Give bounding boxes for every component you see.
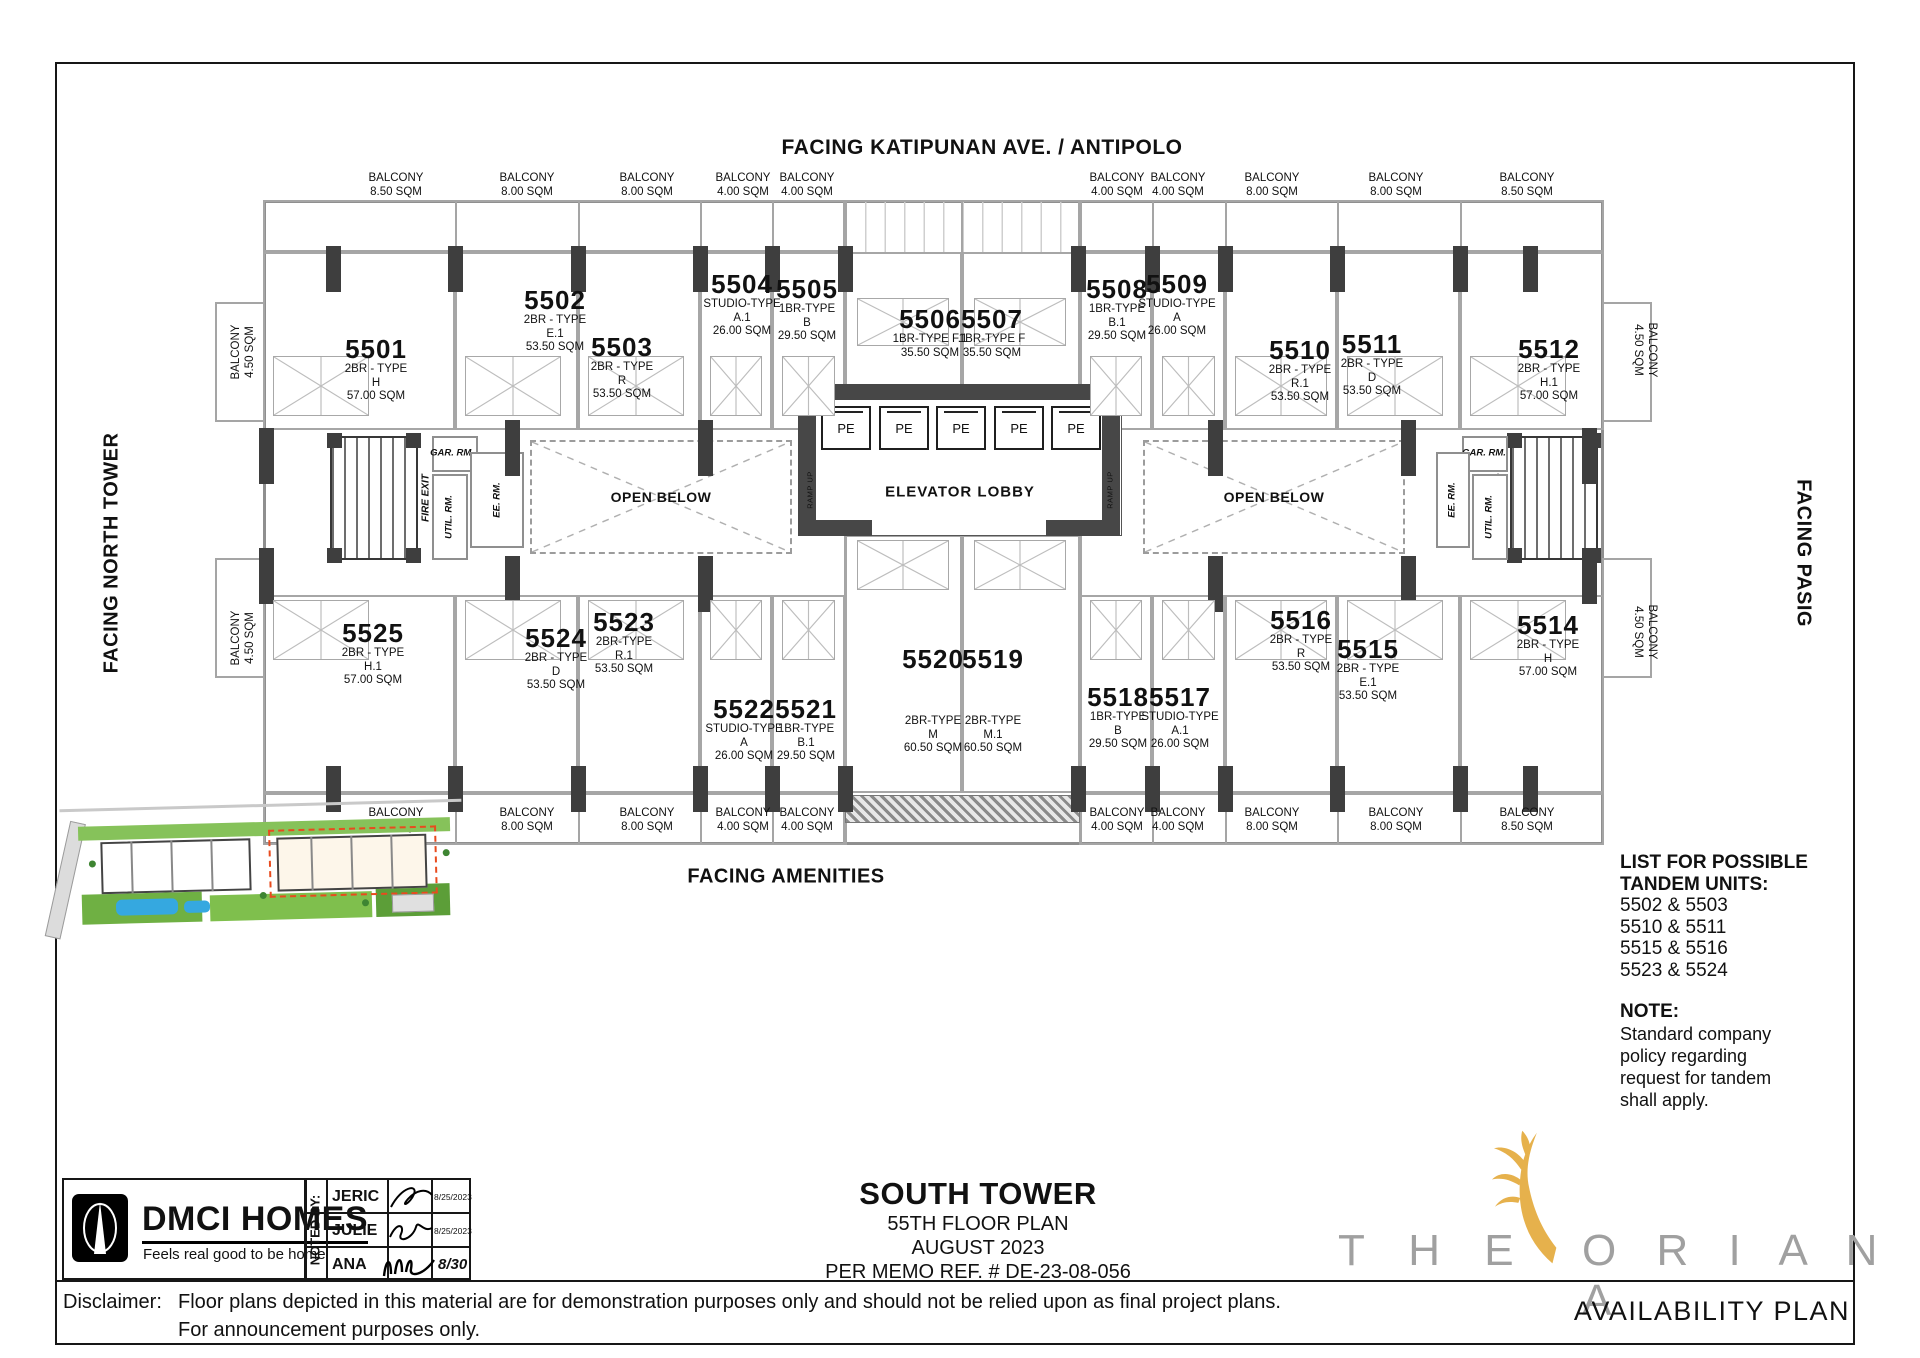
unit-number: 5516 bbox=[1270, 607, 1332, 634]
unit-type: 2BR - TYPEH57.00 SQM bbox=[345, 363, 407, 404]
fixture-cluster bbox=[974, 540, 1066, 590]
fire-exit-stairs bbox=[330, 436, 418, 560]
unit-type: STUDIO-TYPEA.126.00 SQM bbox=[1141, 711, 1218, 752]
unit-type: 2BR - TYPER53.50 SQM bbox=[591, 361, 653, 402]
column bbox=[448, 246, 463, 292]
side-balcony-label: BALCONY4.50 SQM bbox=[229, 611, 257, 666]
elevator-lobby-label: ELEVATOR LOBBY bbox=[885, 484, 1035, 501]
disclaimer-line2: For announcement purposes only. bbox=[178, 1316, 480, 1344]
side-balcony-label: BALCONY4.50 SQM bbox=[1631, 605, 1659, 660]
unit-label-5504: 5504STUDIO-TYPEA.126.00 SQM bbox=[703, 271, 780, 339]
column bbox=[1582, 428, 1597, 484]
unit-type: 2BR-TYPEM60.50 SQM bbox=[902, 715, 964, 756]
column bbox=[1071, 766, 1086, 812]
unit-number: 5523 bbox=[593, 609, 655, 636]
availability-plan-label: AVAILABILITY PLAN bbox=[1574, 1296, 1850, 1327]
plan-title: SOUTH TOWER 55TH FLOOR PLAN AUGUST 2023 … bbox=[825, 1176, 1131, 1284]
unit-label-5503: 55032BR - TYPER53.50 SQM bbox=[591, 334, 653, 402]
elevator-core-wall bbox=[798, 384, 1122, 400]
unit-label-5514: 55142BR - TYPEH57.00 SQM bbox=[1517, 612, 1579, 680]
balcony-label: BALCONY4.00 SQM bbox=[716, 806, 771, 834]
column bbox=[693, 766, 708, 812]
fixture-cluster bbox=[782, 356, 835, 416]
site-map-pool bbox=[116, 898, 178, 916]
balcony-label: BALCONY8.00 SQM bbox=[1245, 171, 1300, 199]
balcony-strip bbox=[263, 200, 845, 252]
balcony-strip bbox=[1080, 200, 1604, 252]
unit-label-5524: 55242BR - TYPED53.50 SQM bbox=[525, 625, 587, 693]
unit-label-5517: 5517STUDIO-TYPEA.126.00 SQM bbox=[1141, 684, 1218, 752]
site-map-pool bbox=[184, 900, 210, 913]
site-map-tree bbox=[443, 849, 450, 856]
unit-type: 2BR - TYPER53.50 SQM bbox=[1270, 634, 1332, 675]
column bbox=[1401, 420, 1416, 476]
balcony-divider bbox=[578, 202, 580, 250]
unit-type: 2BR-TYPEM.160.50 SQM bbox=[962, 715, 1024, 756]
unit-type: STUDIO-TYPEA26.00 SQM bbox=[1138, 298, 1215, 339]
unit-label-5515: 55152BR - TYPEE.153.50 SQM bbox=[1337, 636, 1399, 704]
balcony-label: BALCONY8.00 SQM bbox=[500, 806, 555, 834]
unit-type: 1BR-TYPEB29.50 SQM bbox=[776, 303, 838, 344]
unit-number: 5512 bbox=[1518, 336, 1580, 363]
tandem-pair: 5523 & 5524 bbox=[1620, 960, 1855, 982]
signature bbox=[388, 1217, 434, 1245]
unit-label-5518: 55181BR-TYPEB29.50 SQM bbox=[1087, 684, 1149, 752]
unit-number: 5502 bbox=[524, 287, 586, 314]
column bbox=[1453, 246, 1468, 292]
balcony-label: BALCONY8.50 SQM bbox=[369, 171, 424, 199]
unit-number: 5524 bbox=[525, 625, 587, 652]
unit-type: 2BR - TYPER.153.50 SQM bbox=[1269, 364, 1331, 405]
utility-room-label: UTIL. RM. bbox=[444, 495, 455, 539]
unit-type: 2BR - TYPED53.50 SQM bbox=[525, 652, 587, 693]
column bbox=[1453, 766, 1468, 812]
fixture-cluster bbox=[710, 600, 762, 660]
unit-label-5511: 55112BR - TYPED53.50 SQM bbox=[1341, 331, 1403, 399]
notedby-name: JERIC bbox=[332, 1188, 379, 1206]
unit-number: 5511 bbox=[1341, 331, 1403, 358]
column bbox=[698, 420, 713, 476]
unit-type: 2BR - TYPEH57.00 SQM bbox=[1517, 639, 1579, 680]
closet-band-divider bbox=[961, 202, 963, 252]
balcony-label: BALCONY4.00 SQM bbox=[780, 171, 835, 199]
notedby-row-line bbox=[304, 1246, 471, 1248]
note-line: Standard company bbox=[1620, 1023, 1855, 1045]
fire-exit-label: FIRE EXIT bbox=[421, 474, 432, 522]
notedby-name: JULIE bbox=[332, 1222, 377, 1240]
balcony-divider bbox=[700, 202, 702, 250]
fixture-cluster bbox=[465, 356, 561, 416]
unit-type: STUDIO-TYPEA.126.00 SQM bbox=[703, 298, 780, 339]
column bbox=[1071, 246, 1086, 292]
tandem-pair: 5510 & 5511 bbox=[1620, 917, 1855, 939]
tandem-pair: 5515 & 5516 bbox=[1620, 938, 1855, 960]
notedby-name: ANA bbox=[332, 1256, 367, 1274]
electrical-room-label: EE. RM. bbox=[1447, 482, 1458, 517]
notedby-label: NOTED BY: bbox=[308, 1195, 323, 1266]
unit-number: 5521 bbox=[775, 696, 837, 723]
stair-corner-column bbox=[1507, 433, 1522, 448]
unit-type: 2BR - TYPEE.153.50 SQM bbox=[524, 314, 586, 355]
dmci-logo bbox=[72, 1194, 128, 1262]
unit-type: 2BR-TYPER.153.50 SQM bbox=[593, 636, 655, 677]
unit-number: 5525 bbox=[342, 620, 404, 647]
balcony-label: BALCONY8.00 SQM bbox=[620, 806, 675, 834]
unit-label-5520: 55202BR-TYPEM60.50 SQM bbox=[902, 646, 964, 756]
fixture-cluster bbox=[1090, 600, 1142, 660]
unit-label-5516: 55162BR - TYPER53.50 SQM bbox=[1270, 607, 1332, 675]
elevator-PE: PE bbox=[936, 406, 986, 450]
balcony-label: BALCONY4.00 SQM bbox=[1090, 171, 1145, 199]
ramp-up-label: RAMP UP bbox=[1106, 471, 1115, 509]
column bbox=[1582, 548, 1597, 604]
elevator-PE: PE bbox=[879, 406, 929, 450]
balcony-label: BALCONY8.00 SQM bbox=[620, 171, 675, 199]
balcony-divider bbox=[1225, 202, 1227, 250]
balcony-label: BALCONY8.50 SQM bbox=[1500, 806, 1555, 834]
unit-number: 5507 bbox=[959, 306, 1025, 333]
floor-plan: OPEN BELOWOPEN BELOWFIRE EXITFIRE EXITGA… bbox=[0, 0, 1920, 1358]
garbage-room-label: GAR. RM. bbox=[430, 448, 474, 459]
notedby-divider bbox=[326, 1178, 328, 1280]
elevator-PE: PE bbox=[994, 406, 1044, 450]
unit-number: 5515 bbox=[1337, 636, 1399, 663]
site-map-building-north bbox=[100, 838, 251, 894]
ramp-up-label: RAMP UP bbox=[806, 471, 815, 509]
note-line: shall apply. bbox=[1620, 1089, 1855, 1111]
balcony-divider bbox=[1152, 202, 1154, 250]
unit-label-5525: 55252BR - TYPEH.157.00 SQM bbox=[342, 620, 404, 688]
open-below-label: OPEN BELOW bbox=[1224, 489, 1325, 505]
column bbox=[838, 246, 853, 292]
side-balcony-label: BALCONY4.50 SQM bbox=[1631, 323, 1659, 378]
notedby-date: 8/30 bbox=[438, 1256, 467, 1273]
brand-leaf-icon bbox=[1492, 1128, 1570, 1270]
balcony-divider bbox=[1337, 202, 1339, 250]
unit-type: 2BR - TYPEE.153.50 SQM bbox=[1337, 663, 1399, 704]
memo-ref: PER MEMO REF. # DE-23-08-056 bbox=[825, 1260, 1131, 1284]
unit-number: 5519 bbox=[962, 646, 1024, 673]
balcony-divider bbox=[1460, 202, 1462, 250]
unit-label-5509: 5509STUDIO-TYPEA26.00 SQM bbox=[1138, 271, 1215, 339]
unit-label-5519: 55192BR-TYPEM.160.50 SQM bbox=[962, 646, 1024, 756]
balcony-label: BALCONY4.00 SQM bbox=[1151, 171, 1206, 199]
unit-number: 5514 bbox=[1517, 612, 1579, 639]
balcony-label: BALCONY8.00 SQM bbox=[1245, 806, 1300, 834]
note-line: request for tandem bbox=[1620, 1067, 1855, 1089]
column bbox=[326, 246, 341, 292]
planter-band bbox=[845, 795, 1080, 823]
elevator-core-wall bbox=[1046, 520, 1120, 536]
column bbox=[259, 548, 274, 604]
unit-number: 5501 bbox=[345, 336, 407, 363]
tandem-units-list: LIST FOR POSSIBLE TANDEM UNITS: 5502 & 5… bbox=[1620, 852, 1855, 1111]
unit-type: STUDIO-TYPEA26.00 SQM bbox=[705, 723, 782, 764]
disclaimer-label: Disclaimer: bbox=[63, 1288, 162, 1316]
plan-month: AUGUST 2023 bbox=[825, 1236, 1131, 1260]
note-line: policy regarding bbox=[1620, 1045, 1855, 1067]
column bbox=[1523, 246, 1538, 292]
fixture-cluster bbox=[857, 540, 949, 590]
column bbox=[1330, 246, 1345, 292]
fixture-cluster bbox=[782, 600, 835, 660]
column bbox=[259, 428, 274, 484]
floor-title: 55TH FLOOR PLAN bbox=[825, 1212, 1131, 1236]
tandem-pair: 5502 & 5503 bbox=[1620, 895, 1855, 917]
unit-number: 5522 bbox=[705, 696, 782, 723]
unit-type: 1BR-TYPEB.129.50 SQM bbox=[775, 723, 837, 764]
unit-number: 5503 bbox=[591, 334, 653, 361]
dmci-tagline: Feels real good to be home bbox=[143, 1246, 326, 1263]
site-map-court bbox=[392, 894, 434, 913]
signature bbox=[380, 1250, 438, 1280]
column bbox=[1218, 766, 1233, 812]
site-map bbox=[59, 793, 464, 939]
column bbox=[571, 766, 586, 812]
balcony-label: BALCONY4.00 SQM bbox=[1090, 806, 1145, 834]
column bbox=[1208, 420, 1223, 476]
unit-number: 5517 bbox=[1141, 684, 1218, 711]
balcony-label: BALCONY8.50 SQM bbox=[1500, 171, 1555, 199]
unit-number: 5509 bbox=[1138, 271, 1215, 298]
unit-type: 1BR-TYPE F35.50 SQM bbox=[959, 333, 1025, 360]
balcony-divider bbox=[772, 202, 774, 250]
electrical-room-label: EE. RM. bbox=[492, 482, 503, 517]
site-map-road bbox=[59, 799, 461, 813]
site-map-tree bbox=[89, 860, 96, 867]
disclaimer-line1: Floor plans depicted in this material ar… bbox=[178, 1288, 1281, 1316]
stair-corner-column bbox=[1507, 548, 1522, 563]
unit-label-5512: 55122BR - TYPEH.157.00 SQM bbox=[1518, 336, 1580, 404]
note-heading: NOTE: bbox=[1620, 1001, 1855, 1023]
notedby-date: 8/25/2023 bbox=[434, 1192, 472, 1202]
unit-number: 5505 bbox=[776, 276, 838, 303]
stair-corner-column bbox=[327, 548, 342, 563]
notedby-date: 8/25/2023 bbox=[434, 1226, 472, 1236]
unit-type: 1BR-TYPEB29.50 SQM bbox=[1087, 711, 1149, 752]
column bbox=[1218, 246, 1233, 292]
unit-type: 2BR - TYPEH.157.00 SQM bbox=[1518, 363, 1580, 404]
unit-type: 1BR-TYPE F.135.50 SQM bbox=[893, 333, 968, 360]
tower-title: SOUTH TOWER bbox=[825, 1176, 1131, 1212]
unit-label-5522: 5522STUDIO-TYPEA26.00 SQM bbox=[705, 696, 782, 764]
column bbox=[505, 420, 520, 476]
column bbox=[838, 766, 853, 812]
unit-number: 5504 bbox=[703, 271, 780, 298]
balcony-label: BALCONY4.00 SQM bbox=[780, 806, 835, 834]
closet-band bbox=[845, 200, 1080, 254]
unit-label-5506: 55061BR-TYPE F.135.50 SQM bbox=[893, 306, 968, 360]
unit-label-5507: 55071BR-TYPE F35.50 SQM bbox=[959, 306, 1025, 360]
site-map-highlight-box bbox=[268, 825, 438, 897]
balcony-label: BALCONY4.00 SQM bbox=[1151, 806, 1206, 834]
fixture-cluster bbox=[1162, 600, 1215, 660]
open-below-label: OPEN BELOW bbox=[611, 489, 712, 505]
fixture-cluster bbox=[1162, 356, 1215, 416]
balcony-divider bbox=[455, 202, 457, 250]
elevator-core-wall bbox=[798, 520, 872, 536]
stair-corner-column bbox=[406, 433, 421, 448]
unit-label-5510: 55102BR - TYPER.153.50 SQM bbox=[1269, 337, 1331, 405]
stair-corner-column bbox=[406, 548, 421, 563]
unit-label-5505: 55051BR-TYPEB29.50 SQM bbox=[776, 276, 838, 344]
balcony-label: BALCONY8.00 SQM bbox=[500, 171, 555, 199]
tandem-heading: LIST FOR POSSIBLE bbox=[1620, 852, 1855, 874]
notedby-row-line bbox=[304, 1212, 471, 1214]
signature bbox=[388, 1183, 434, 1211]
unit-label-5502: 55022BR - TYPEE.153.50 SQM bbox=[524, 287, 586, 355]
stair-corner-column bbox=[327, 433, 342, 448]
unit-type: 2BR - TYPED53.50 SQM bbox=[1341, 358, 1403, 399]
balcony-label: BALCONY4.00 SQM bbox=[716, 171, 771, 199]
unit-number: 5510 bbox=[1269, 337, 1331, 364]
balcony-label: BALCONY8.00 SQM bbox=[1369, 171, 1424, 199]
unit-label-5521: 55211BR-TYPEB.129.50 SQM bbox=[775, 696, 837, 764]
fixture-cluster bbox=[710, 356, 762, 416]
unit-label-5523: 55232BR-TYPER.153.50 SQM bbox=[593, 609, 655, 677]
column bbox=[1330, 766, 1345, 812]
unit-number: 5518 bbox=[1087, 684, 1149, 711]
side-balcony-label: BALCONY4.50 SQM bbox=[229, 325, 257, 380]
fixture-cluster bbox=[1090, 356, 1142, 416]
unit-number: 5520 bbox=[902, 646, 964, 673]
utility-room-label: UTIL. RM. bbox=[1484, 495, 1495, 539]
balcony-label: BALCONY8.00 SQM bbox=[1369, 806, 1424, 834]
unit-number: 5506 bbox=[893, 306, 968, 333]
unit-label-5501: 55012BR - TYPEH57.00 SQM bbox=[345, 336, 407, 404]
unit-type: 2BR - TYPEH.157.00 SQM bbox=[342, 647, 404, 688]
